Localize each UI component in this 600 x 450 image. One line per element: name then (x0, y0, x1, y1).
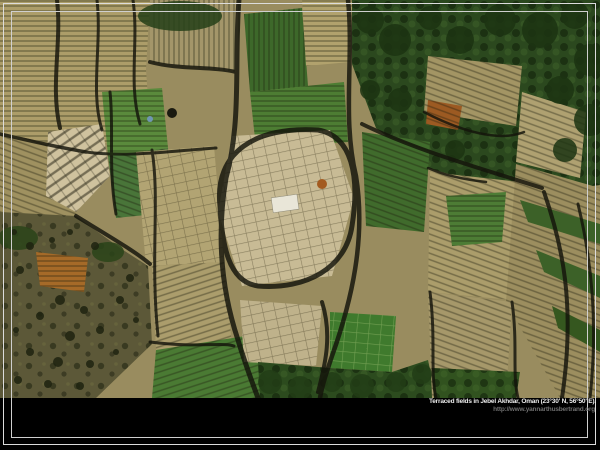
dark-spot (167, 108, 177, 118)
blue-object (147, 116, 153, 122)
orange-patch (317, 179, 327, 189)
caption-url: http://www.yannarthusbertrand.org (429, 406, 596, 414)
caption-title: Terraced fields in Jebel Akhdar, Oman (2… (429, 398, 596, 406)
aerial-photo-svg (0, 0, 600, 398)
wallpaper: Terraced fields in Jebel Akhdar, Oman (2… (0, 0, 600, 450)
aerial-photo (0, 0, 600, 398)
fields-layer (0, 0, 600, 398)
photo-caption: Terraced fields in Jebel Akhdar, Oman (2… (429, 398, 596, 414)
